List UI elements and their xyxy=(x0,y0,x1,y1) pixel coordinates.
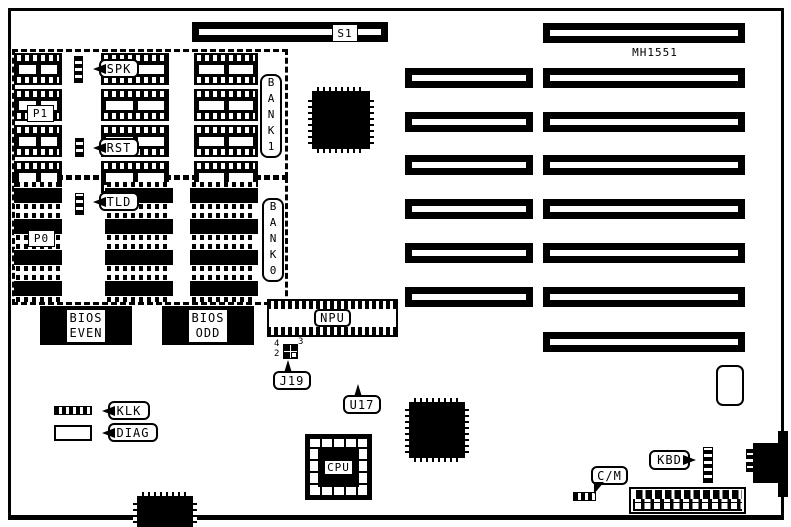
npu-socket: NPU xyxy=(267,299,398,337)
power-pin-row xyxy=(633,490,742,499)
isa-slot-long xyxy=(543,287,745,307)
dip-chip xyxy=(14,275,62,302)
j19-callout-text: J19 xyxy=(280,374,305,388)
isa-slot-long xyxy=(543,68,745,88)
rst-header xyxy=(75,138,84,157)
bios-even-line1: BIOS xyxy=(70,311,103,326)
j19-callout: J19 xyxy=(273,371,311,390)
dip-socket xyxy=(194,53,258,85)
isa-slot-short xyxy=(405,155,533,175)
bios-odd-line2: ODD xyxy=(192,326,225,341)
din-connector-pin xyxy=(746,449,754,459)
slot-stripe xyxy=(550,119,738,125)
cpu-label: CPU xyxy=(324,460,353,475)
bank1-socket-column xyxy=(194,53,258,193)
dip-chip xyxy=(105,213,173,240)
spk-callout: SPK xyxy=(99,59,139,78)
j19-pin3-number: 3 xyxy=(298,337,303,347)
isa-slot-short xyxy=(405,199,533,219)
slot-stripe xyxy=(550,339,738,345)
isa-slot-long xyxy=(543,112,745,132)
kbd-pin-header xyxy=(703,447,713,483)
isa-slot-long xyxy=(543,23,745,43)
p1-label: P1 xyxy=(27,105,54,122)
dip-chip xyxy=(190,244,258,271)
klk-callout: KLK xyxy=(108,401,150,420)
npu-pin-row xyxy=(269,301,396,309)
u17-callout: U17 xyxy=(343,395,381,414)
bios-odd-chip: BIOS ODD xyxy=(162,306,254,345)
npu-pin-row xyxy=(269,327,396,335)
isa-slot-long xyxy=(543,332,745,352)
din-connector-pin xyxy=(746,462,754,472)
cpu-die: CPU xyxy=(318,447,359,487)
rst-callout: RST xyxy=(99,138,139,157)
slot-stripe xyxy=(550,206,738,212)
slot-stripe xyxy=(412,294,526,300)
tld-callout-text: TLD xyxy=(107,195,132,209)
slot-stripe xyxy=(550,294,738,300)
bank0-label: BANK0 xyxy=(262,198,284,282)
dip-chip xyxy=(14,244,62,271)
kbd-header-callout-text: KBD xyxy=(657,453,682,467)
diag-callout-text: DIAG xyxy=(117,426,150,440)
diag-callout: DIAG xyxy=(108,423,158,442)
diag-connector xyxy=(54,425,92,441)
dip-socket xyxy=(14,125,62,157)
slot-stripe xyxy=(550,162,738,168)
cm-callout: C/M xyxy=(591,466,628,485)
bios-even-chip: BIOS EVEN xyxy=(40,306,132,345)
bios-odd-line1: BIOS xyxy=(192,311,225,326)
slot-stripe xyxy=(550,30,738,36)
power-socket-row xyxy=(633,502,742,511)
isa-slot-long xyxy=(543,155,745,175)
slot-stripe xyxy=(412,162,526,168)
qfp-chip xyxy=(133,492,197,527)
bios-even-label: BIOS EVEN xyxy=(66,309,107,343)
cpu-socket: CPU xyxy=(305,434,372,500)
klk-header xyxy=(54,406,92,415)
cm-callout-text: C/M xyxy=(597,469,622,483)
isa-slot-long xyxy=(543,199,745,219)
battery-outline xyxy=(716,365,744,406)
board-model-text: MH1551 xyxy=(600,46,710,59)
slot-stripe xyxy=(550,250,738,256)
dip-socket xyxy=(194,89,258,121)
j19-pin4-number: 4 xyxy=(274,339,279,349)
slot-s1: S1 xyxy=(192,22,388,42)
isa-slot-short xyxy=(405,243,533,263)
p0-label: P0 xyxy=(28,230,55,247)
bios-even-line2: EVEN xyxy=(70,326,103,341)
cm-jumper xyxy=(573,492,596,501)
kbd-header-callout: KBD xyxy=(649,450,690,470)
power-connector xyxy=(629,487,746,514)
j19-pin2-number: 2 xyxy=(274,349,279,359)
npu-label: NPU xyxy=(314,309,351,327)
bank1-socket-column xyxy=(14,53,62,193)
slot-stripe xyxy=(412,250,526,256)
bank1-label: BANK1 xyxy=(260,74,282,158)
tld-header xyxy=(75,193,84,215)
din-connector-body xyxy=(753,443,781,483)
dip-socket xyxy=(194,125,258,157)
klk-callout-text: KLK xyxy=(117,404,142,418)
bios-odd-label: BIOS ODD xyxy=(188,309,229,343)
slot-stripe xyxy=(412,119,526,125)
qfp-chip xyxy=(308,87,374,153)
s1-label-text: S1 xyxy=(337,27,352,40)
u17-callout-text: U17 xyxy=(350,398,375,412)
tld-callout: TLD xyxy=(99,192,139,211)
slot-stripe xyxy=(550,75,738,81)
slot-stripe xyxy=(412,75,526,81)
motherboard-diagram: S1 MH1551 xyxy=(0,0,791,527)
bank0-chip-column xyxy=(190,182,258,302)
s1-label: S1 xyxy=(332,24,358,42)
dip-chip xyxy=(190,275,258,302)
spk-callout-text: SPK xyxy=(107,62,132,76)
dip-chip xyxy=(14,182,62,209)
isa-slot-short xyxy=(405,112,533,132)
qfp-chip xyxy=(405,398,469,462)
rst-callout-text: RST xyxy=(107,141,132,155)
dip-chip xyxy=(105,244,173,271)
spk-header xyxy=(74,56,83,83)
isa-slot-short xyxy=(405,68,533,88)
dip-chip xyxy=(105,275,173,302)
dip-socket xyxy=(101,89,169,121)
slot-stripe xyxy=(412,206,526,212)
dip-chip xyxy=(190,182,258,209)
isa-slot-short xyxy=(405,287,533,307)
j19-jumper-block xyxy=(283,344,298,359)
dip-chip xyxy=(190,213,258,240)
dip-socket xyxy=(14,53,62,85)
isa-slot-long xyxy=(543,243,745,263)
